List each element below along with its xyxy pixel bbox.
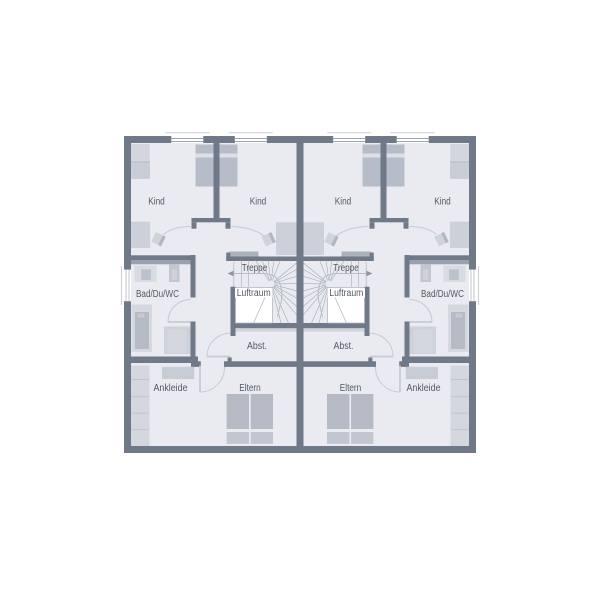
svg-text:Eltern: Eltern	[340, 383, 362, 394]
svg-text:Luftraum: Luftraum	[237, 288, 271, 299]
svg-text:Kind: Kind	[335, 197, 352, 208]
svg-text:Treppe: Treppe	[333, 263, 359, 274]
svg-text:Bad/Du/WC: Bad/Du/WC	[421, 289, 464, 300]
svg-text:Ankleide: Ankleide	[407, 383, 441, 394]
svg-text:Bad/Du/WC: Bad/Du/WC	[136, 289, 179, 300]
svg-text:Abst.: Abst.	[334, 341, 354, 352]
svg-text:Treppe: Treppe	[242, 263, 268, 274]
svg-text:Kind: Kind	[148, 197, 165, 208]
svg-text:Kind: Kind	[250, 197, 267, 208]
svg-text:Luftraum: Luftraum	[329, 288, 363, 299]
svg-text:Kind: Kind	[434, 197, 451, 208]
svg-text:Abst.: Abst.	[247, 341, 267, 352]
svg-text:Eltern: Eltern	[239, 383, 261, 394]
svg-text:Ankleide: Ankleide	[154, 383, 188, 394]
